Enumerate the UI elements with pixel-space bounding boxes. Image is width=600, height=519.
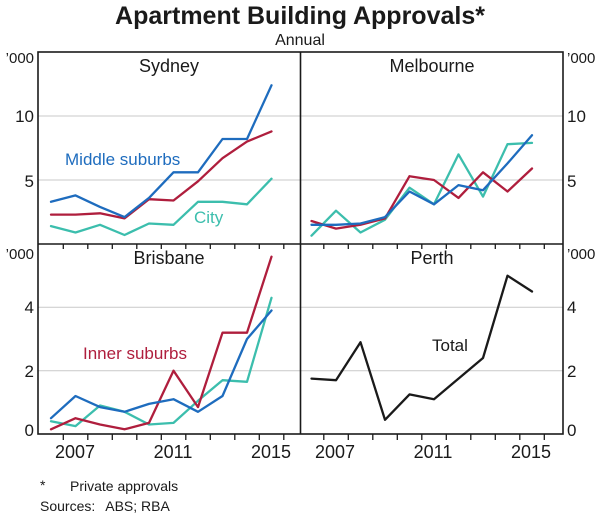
- y-axis-unit-bottom-right: ’000: [567, 246, 600, 264]
- panel-title-perth: Perth: [342, 248, 522, 269]
- x-tick-left-2007: 2007: [40, 442, 110, 463]
- y-tick-right-5: 5: [567, 173, 600, 191]
- series-label-total: Total: [432, 336, 468, 356]
- y-tick-right-2: 2: [567, 363, 600, 381]
- series-label-middle-suburbs: Middle suburbs: [65, 150, 180, 170]
- x-tick-left-2015: 2015: [236, 442, 306, 463]
- sources-label: Sources:: [40, 498, 95, 514]
- footnote-marker: *: [40, 477, 45, 493]
- y-tick-right-0: 0: [567, 422, 600, 440]
- y-tick-left-0: 0: [0, 422, 34, 440]
- panel-title-melbourne: Melbourne: [342, 56, 522, 77]
- y-tick-left-5: 5: [0, 173, 34, 191]
- y-tick-right-10: 10: [567, 108, 600, 126]
- y-tick-left-2: 2: [0, 363, 34, 381]
- footnote-text: Private approvals: [70, 478, 178, 494]
- chart-figure: Apartment Building Approvals* Annual Syd…: [0, 0, 600, 519]
- series-label-inner-suburbs: Inner suburbs: [83, 344, 187, 364]
- panel-title-sydney: Sydney: [79, 56, 259, 77]
- sources-value: ABS; RBA: [105, 498, 170, 514]
- y-tick-right-4: 4: [567, 299, 600, 317]
- sources-line: Sources:ABS; RBA: [40, 498, 170, 514]
- panel-title-brisbane: Brisbane: [79, 248, 259, 269]
- x-tick-right-2007: 2007: [300, 442, 370, 463]
- x-tick-right-2015: 2015: [496, 442, 566, 463]
- x-tick-right-2011: 2011: [398, 442, 468, 463]
- y-tick-left-4: 4: [0, 299, 34, 317]
- y-axis-unit-top-left: ’000: [0, 50, 34, 68]
- y-axis-unit-bottom-left: ’000: [0, 246, 34, 264]
- series-label-city: City: [194, 208, 223, 228]
- y-axis-unit-top-right: ’000: [567, 50, 600, 68]
- y-tick-left-10: 10: [0, 108, 34, 126]
- x-tick-left-2011: 2011: [138, 442, 208, 463]
